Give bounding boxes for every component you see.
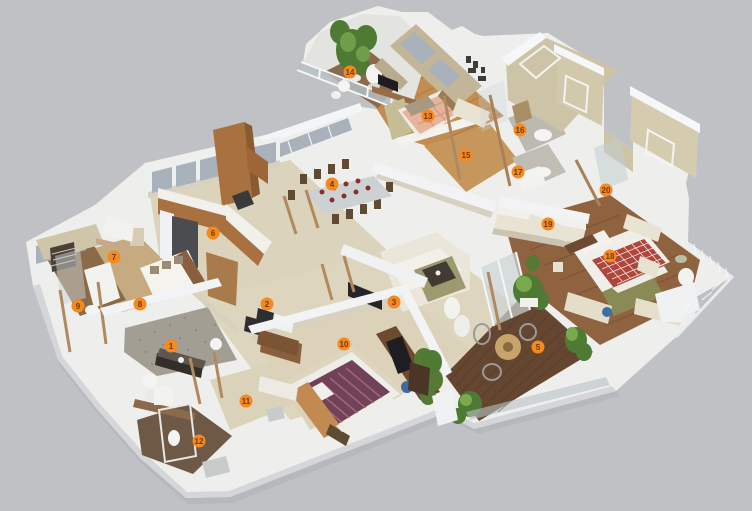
svg-text:11: 11 <box>242 397 251 406</box>
svg-text:15: 15 <box>462 151 471 160</box>
svg-text:18: 18 <box>606 252 615 261</box>
svg-text:3: 3 <box>392 298 397 307</box>
svg-text:8: 8 <box>138 300 143 309</box>
svg-text:19: 19 <box>544 220 553 229</box>
svg-text:14: 14 <box>346 68 355 77</box>
svg-text:20: 20 <box>602 186 611 195</box>
svg-text:1: 1 <box>169 342 174 351</box>
svg-text:4: 4 <box>330 180 335 189</box>
svg-text:10: 10 <box>340 340 349 349</box>
svg-text:5: 5 <box>536 343 541 352</box>
svg-text:13: 13 <box>424 112 433 121</box>
svg-text:17: 17 <box>514 168 523 177</box>
svg-text:12: 12 <box>195 437 204 446</box>
svg-text:6: 6 <box>211 229 216 238</box>
svg-text:7: 7 <box>112 253 117 262</box>
svg-text:2: 2 <box>265 300 270 309</box>
svg-text:9: 9 <box>76 302 81 311</box>
svg-text:16: 16 <box>516 126 525 135</box>
